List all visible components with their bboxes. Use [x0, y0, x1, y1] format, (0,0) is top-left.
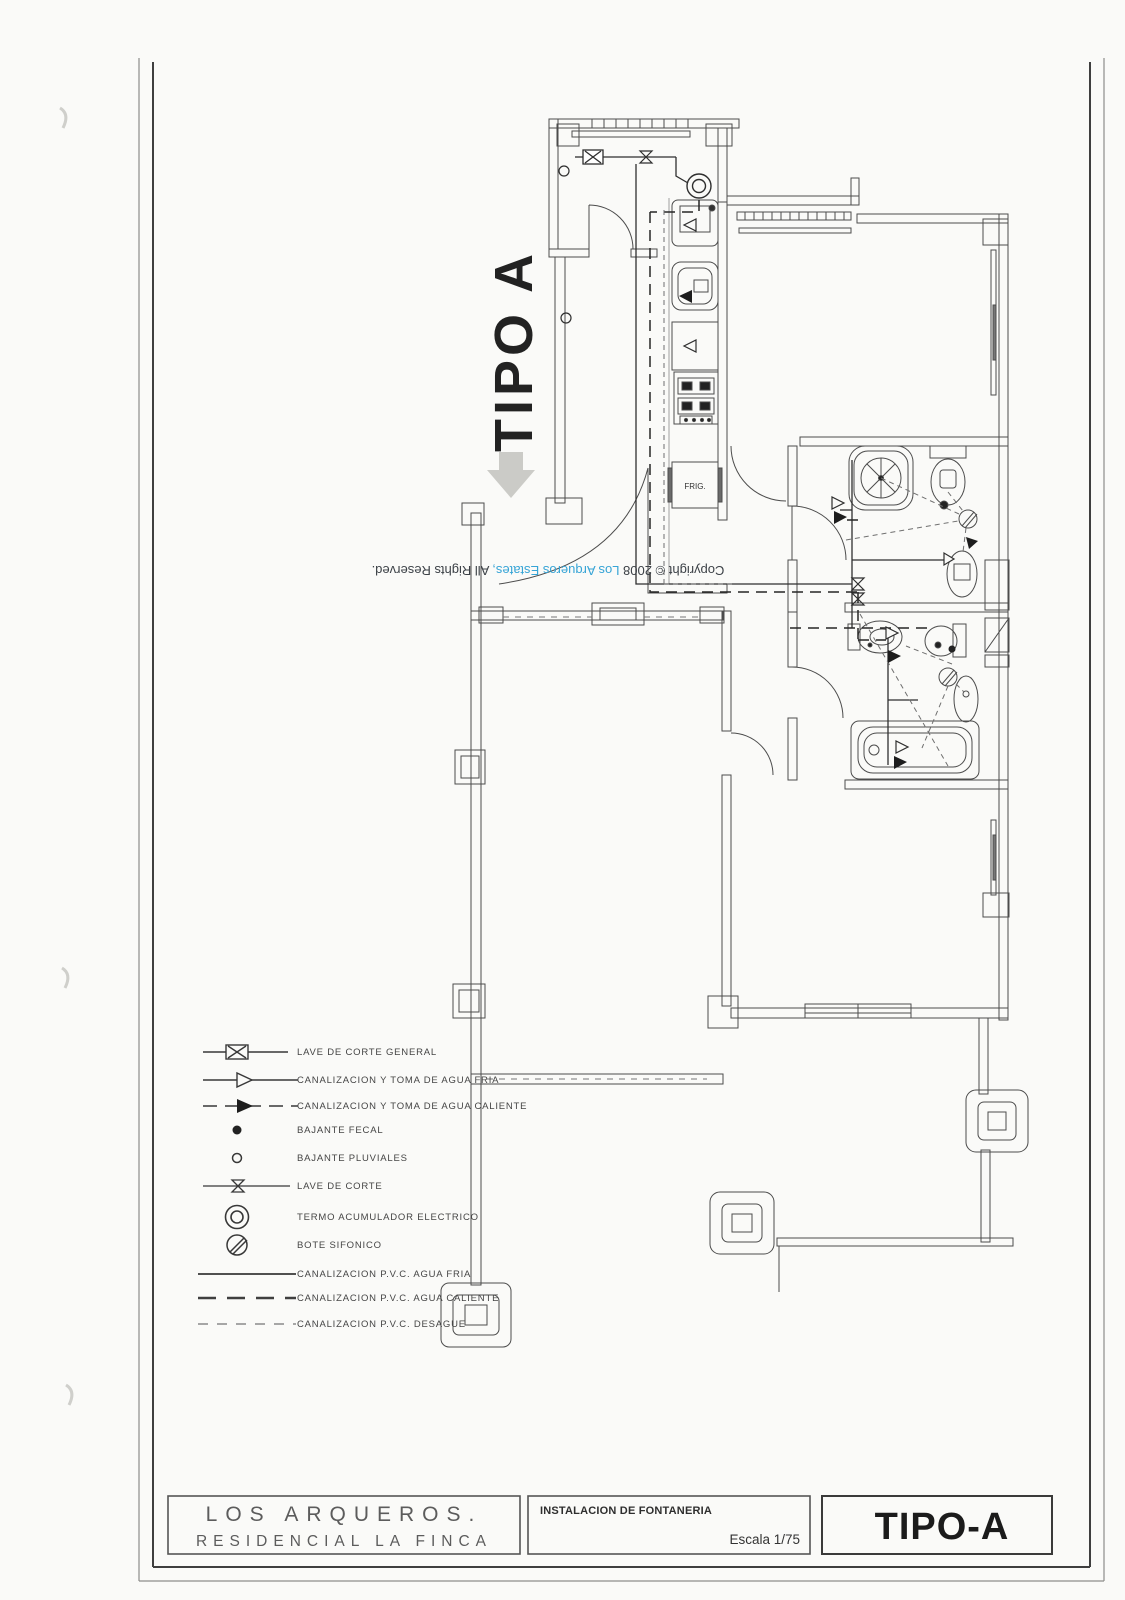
legend-label: CANALIZACION P.V.C. AGUA CALIENTE — [297, 1293, 499, 1304]
bathroom-b-door-arc — [792, 667, 843, 718]
type-watermark: TIPO A — [484, 250, 544, 452]
toilet-b — [925, 624, 966, 657]
legend-symbol-pluvial — [233, 1154, 242, 1163]
stove — [674, 372, 718, 424]
project-name-line2: RESIDENCIAL LA FINCA — [196, 1533, 492, 1550]
floor-plan-drawing: FRIG. — [0, 0, 1125, 1600]
windows — [479, 119, 996, 1079]
legend-label: LAVE DE CORTE GENERAL — [297, 1047, 437, 1058]
legend-label: BOTE SIFONICO — [297, 1240, 382, 1251]
legend-label: CANALIZACION Y TOMA DE AGUA CALIENTE — [297, 1101, 527, 1112]
legend-label: CANALIZACION Y TOMA DE AGUA FRIA — [297, 1075, 499, 1086]
washbasin-b — [954, 676, 978, 722]
project-name-line1: LOS ARQUEROS. — [206, 1503, 483, 1526]
valves-and-taps — [559, 151, 978, 769]
legend-symbol-cold-supply — [203, 1073, 298, 1087]
copyright-suffix: All Rights Reserved. — [372, 563, 493, 578]
bedroom2-door-arc — [731, 733, 773, 775]
copyright-line: Copyright © 2008 Los Arqueros Estates, A… — [372, 563, 725, 578]
legend: LAVE DE CORTE GENERAL CANALIZACION Y TOM… — [198, 1045, 527, 1330]
legend-label: CANALIZACION P.V.C. AGUA FRIA — [297, 1269, 471, 1280]
legend-label: TERMO ACUMULADOR ELECTRICO — [297, 1212, 479, 1223]
cold-water-lines — [575, 150, 946, 765]
legend-symbol-fecal — [233, 1126, 242, 1135]
fridge-label: FRIG. — [684, 482, 705, 491]
water-heater — [687, 174, 711, 198]
legend-symbol-heater — [226, 1206, 249, 1229]
legend-label: BAJANTE PLUVIALES — [297, 1153, 408, 1164]
copyright-prefix: Copyright © 2008 — [619, 563, 724, 578]
down-arrow-watermark — [487, 452, 535, 498]
scale-label: Escala 1/75 — [729, 1532, 800, 1547]
legend-label: CANALIZACION P.V.C. DESAGUE — [297, 1319, 466, 1330]
bidet — [848, 621, 902, 653]
copyright-brand: Los Arqueros Estates, — [492, 563, 619, 578]
sheet-code: TIPO-A — [875, 1506, 1010, 1548]
legend-label: LAVE DE CORTE — [297, 1181, 383, 1192]
washing-machine — [672, 262, 718, 310]
legend-symbol-siphon — [227, 1235, 247, 1255]
siphon-pot-b — [939, 668, 957, 686]
sewage-downpipe-dot — [940, 501, 948, 509]
siphon-pot-a — [959, 510, 977, 528]
legend-symbol-general-cut-valve — [203, 1045, 288, 1059]
blueprint-sheet: FRIG. — [0, 0, 1125, 1600]
drawing-title: INSTALACION DE FONTANERIA — [540, 1505, 712, 1517]
drain-lines — [664, 210, 966, 766]
bathtub — [851, 721, 979, 779]
toilet-a — [930, 446, 966, 505]
bedroom1-door-arc — [731, 446, 786, 501]
entry-door-arc — [589, 205, 633, 249]
sheet-frame — [139, 58, 1104, 1581]
walls — [471, 119, 1013, 1292]
legend-symbol-hot-supply — [203, 1099, 298, 1113]
scan-artifacts — [60, 108, 72, 1405]
title-block: LOS ARQUEROS. RESIDENCIAL LA FINCA INSTA… — [168, 1496, 1052, 1554]
legend-label: BAJANTE FECAL — [297, 1125, 383, 1136]
legend-symbol-cut-valve — [203, 1180, 290, 1192]
